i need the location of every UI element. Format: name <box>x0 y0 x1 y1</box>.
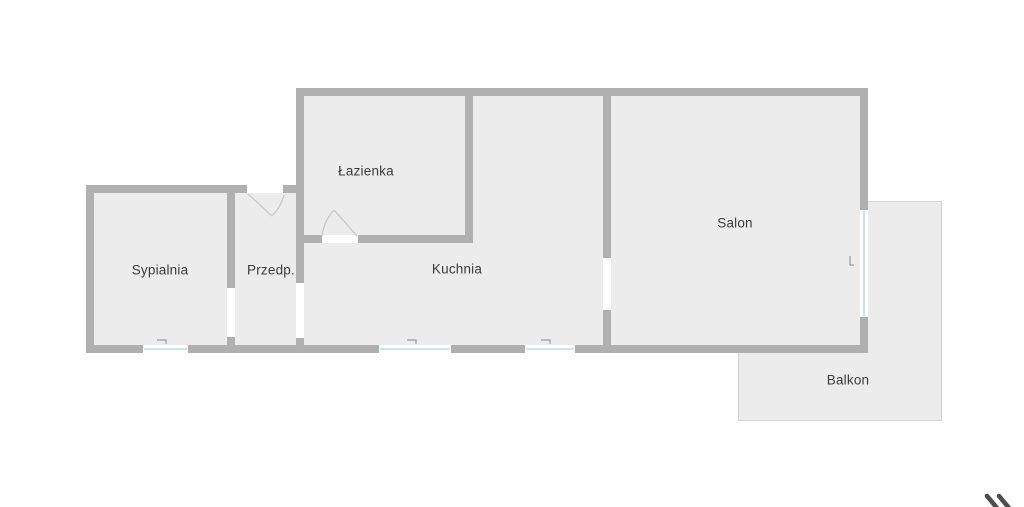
wall <box>296 338 304 345</box>
window-glass-line <box>863 211 865 316</box>
watermark-chevron-icon <box>999 496 1009 507</box>
wall <box>296 96 304 283</box>
room-label-balkon: Balkon <box>827 373 869 388</box>
door-opening <box>247 185 283 193</box>
wall <box>227 193 235 288</box>
door-opening <box>322 235 358 243</box>
door-opening <box>296 283 304 338</box>
wall <box>86 185 94 353</box>
room-label-lazienka: Łazienka <box>338 164 394 179</box>
door-opening <box>227 288 235 337</box>
wall <box>227 337 235 345</box>
door-opening <box>603 258 611 310</box>
floorplan-page: ŁazienkaSalonSypialniaPrzedp.KuchniaBalk… <box>0 0 1024 507</box>
floor-plan: ŁazienkaSalonSypialniaPrzedp.KuchniaBalk… <box>0 0 1024 507</box>
room-label-kuchnia: Kuchnia <box>432 262 482 277</box>
room-floor <box>304 96 860 345</box>
room-label-sypialnia: Sypialnia <box>132 263 189 278</box>
window-glass-line <box>144 348 187 350</box>
wall <box>358 235 473 243</box>
window-glass-line <box>526 348 574 350</box>
wall <box>465 96 473 235</box>
wall <box>296 235 322 243</box>
wall <box>603 96 611 258</box>
wall <box>603 310 611 345</box>
room-label-salon: Salon <box>717 216 753 231</box>
wall <box>296 88 868 96</box>
wall <box>86 345 868 353</box>
room-label-przedpokoj: Przedp. <box>247 263 295 278</box>
window-glass-line <box>380 348 450 350</box>
wall <box>86 185 247 193</box>
watermark-chevron-icon <box>987 496 997 507</box>
